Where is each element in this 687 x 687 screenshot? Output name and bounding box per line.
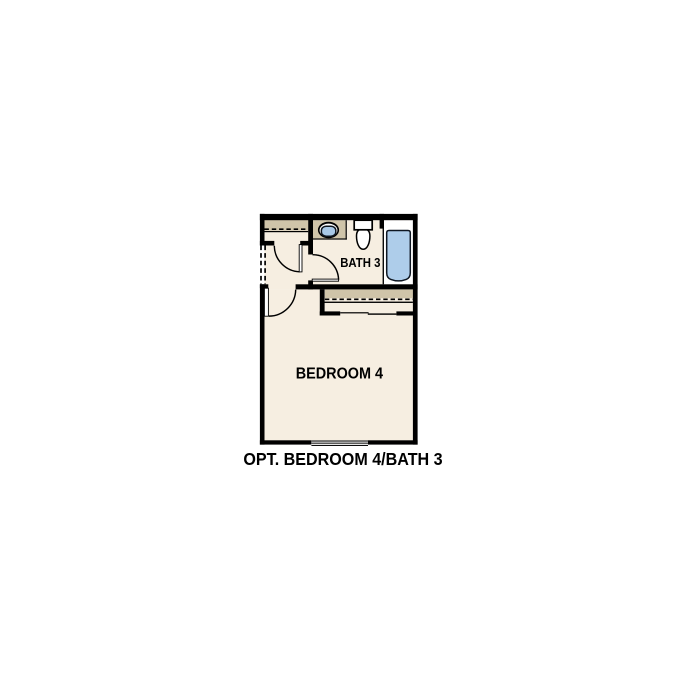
svg-text:OPT. BEDROOM 4/BATH 3: OPT. BEDROOM 4/BATH 3	[243, 449, 442, 469]
svg-text:BATH 3: BATH 3	[340, 255, 380, 270]
svg-text:BEDROOM 4: BEDROOM 4	[296, 366, 383, 383]
